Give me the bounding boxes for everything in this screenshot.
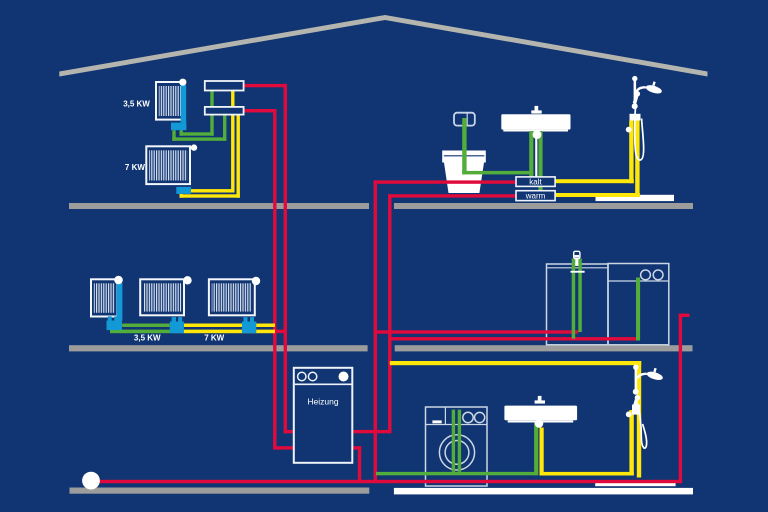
svg-text:Heizung: Heizung — [307, 397, 338, 407]
svg-text:7 KW: 7 KW — [125, 163, 145, 172]
svg-text:3,5 KW: 3,5 KW — [123, 99, 150, 108]
svg-text:7 KW: 7 KW — [204, 334, 224, 343]
svg-text:kalt: kalt — [529, 178, 542, 187]
svg-text:warm: warm — [525, 192, 546, 201]
svg-text:3,5 KW: 3,5 KW — [134, 334, 161, 343]
